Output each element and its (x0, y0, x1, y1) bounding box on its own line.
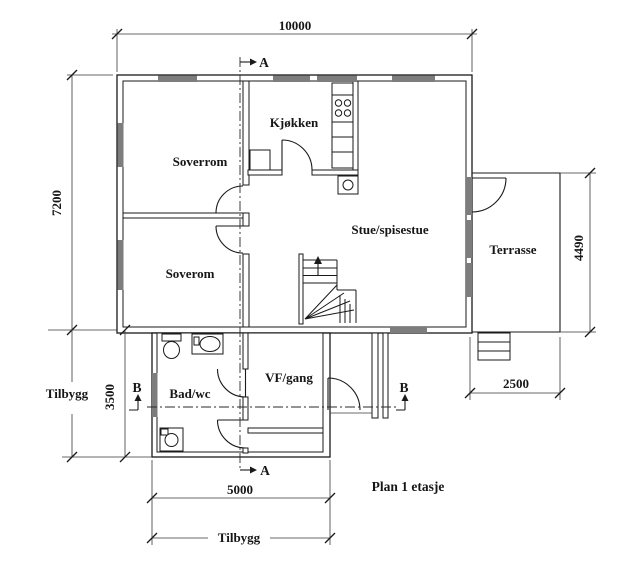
chimney-icon (338, 176, 358, 194)
plan-title: Plan 1 etasje (372, 479, 445, 494)
section-b-right-marker: B (396, 380, 409, 410)
section-b-left-marker: B (129, 380, 142, 410)
room-label-soverrom: Soverrom (173, 154, 228, 169)
room-label-kjokken: Kjøkken (270, 115, 319, 130)
window-left-2 (118, 240, 124, 290)
room-label-terrasse: Terrasse (489, 242, 536, 257)
section-a-top-label: A (259, 55, 269, 70)
dim-terrasse-width: 2500 (503, 376, 529, 391)
window-right-2 (466, 263, 472, 297)
window-left-1 (118, 123, 124, 167)
floor-plan-drawing: 10000 7200 Tilbygg 3500 4490 2500 5000 (0, 0, 617, 561)
window-top-1 (158, 76, 197, 83)
porch-walls (330, 333, 388, 418)
dim-top-width: 10000 (279, 18, 312, 33)
window-bottom (390, 327, 427, 333)
kitchen-cabinet (250, 150, 270, 170)
terrace-steps-icon (478, 333, 510, 360)
entry-door (328, 378, 360, 410)
tilbygg-left-label: Tilbygg (46, 386, 89, 401)
window-right-1 (466, 220, 472, 258)
section-a-bottom-label: A (260, 463, 270, 478)
dimension-tilbygg-left: Tilbygg (46, 330, 152, 462)
dim-terrasse-height: 4490 (571, 235, 586, 261)
room-label-soverom: Soverom (166, 266, 215, 281)
main-house-walls (117, 75, 472, 333)
washer-icon (160, 428, 183, 451)
room-label-bad: Bad/wc (169, 386, 210, 401)
room-label-stue: Stue/spisestue (351, 222, 429, 237)
dimension-tilbygg-bottom: Tilbygg (147, 530, 335, 545)
toilet-icon (162, 334, 181, 359)
dim-left-height: 7200 (49, 190, 64, 216)
section-a-top-marker: A (240, 55, 269, 70)
terrace-door (472, 178, 506, 212)
dimension-top: 10000 (112, 18, 477, 72)
sink-icon (192, 334, 223, 354)
window-top-2 (273, 76, 310, 83)
section-b-left-label: B (132, 380, 141, 395)
tilbygg-bottom-label: Tilbygg (218, 530, 261, 545)
window-top-3 (317, 76, 357, 83)
terrace-door-frame (466, 177, 472, 215)
dim-tilbygg-height: 3500 (102, 384, 117, 410)
room-label-vf: VF/gang (265, 370, 313, 385)
section-a-bottom-marker: A (240, 463, 270, 478)
dimension-left-7200: 7200 (48, 70, 117, 335)
dimension-3500: 3500 (102, 325, 130, 462)
dimension-4490: 4490 (560, 168, 596, 337)
section-b-right-label: B (399, 380, 408, 395)
window-bad (152, 373, 158, 417)
terrace-outline (472, 173, 560, 360)
floor-plan-sheet: 10000 7200 Tilbygg 3500 4490 2500 5000 (0, 0, 617, 561)
dim-tilbygg-width: 5000 (227, 482, 253, 497)
window-top-4 (392, 76, 435, 83)
